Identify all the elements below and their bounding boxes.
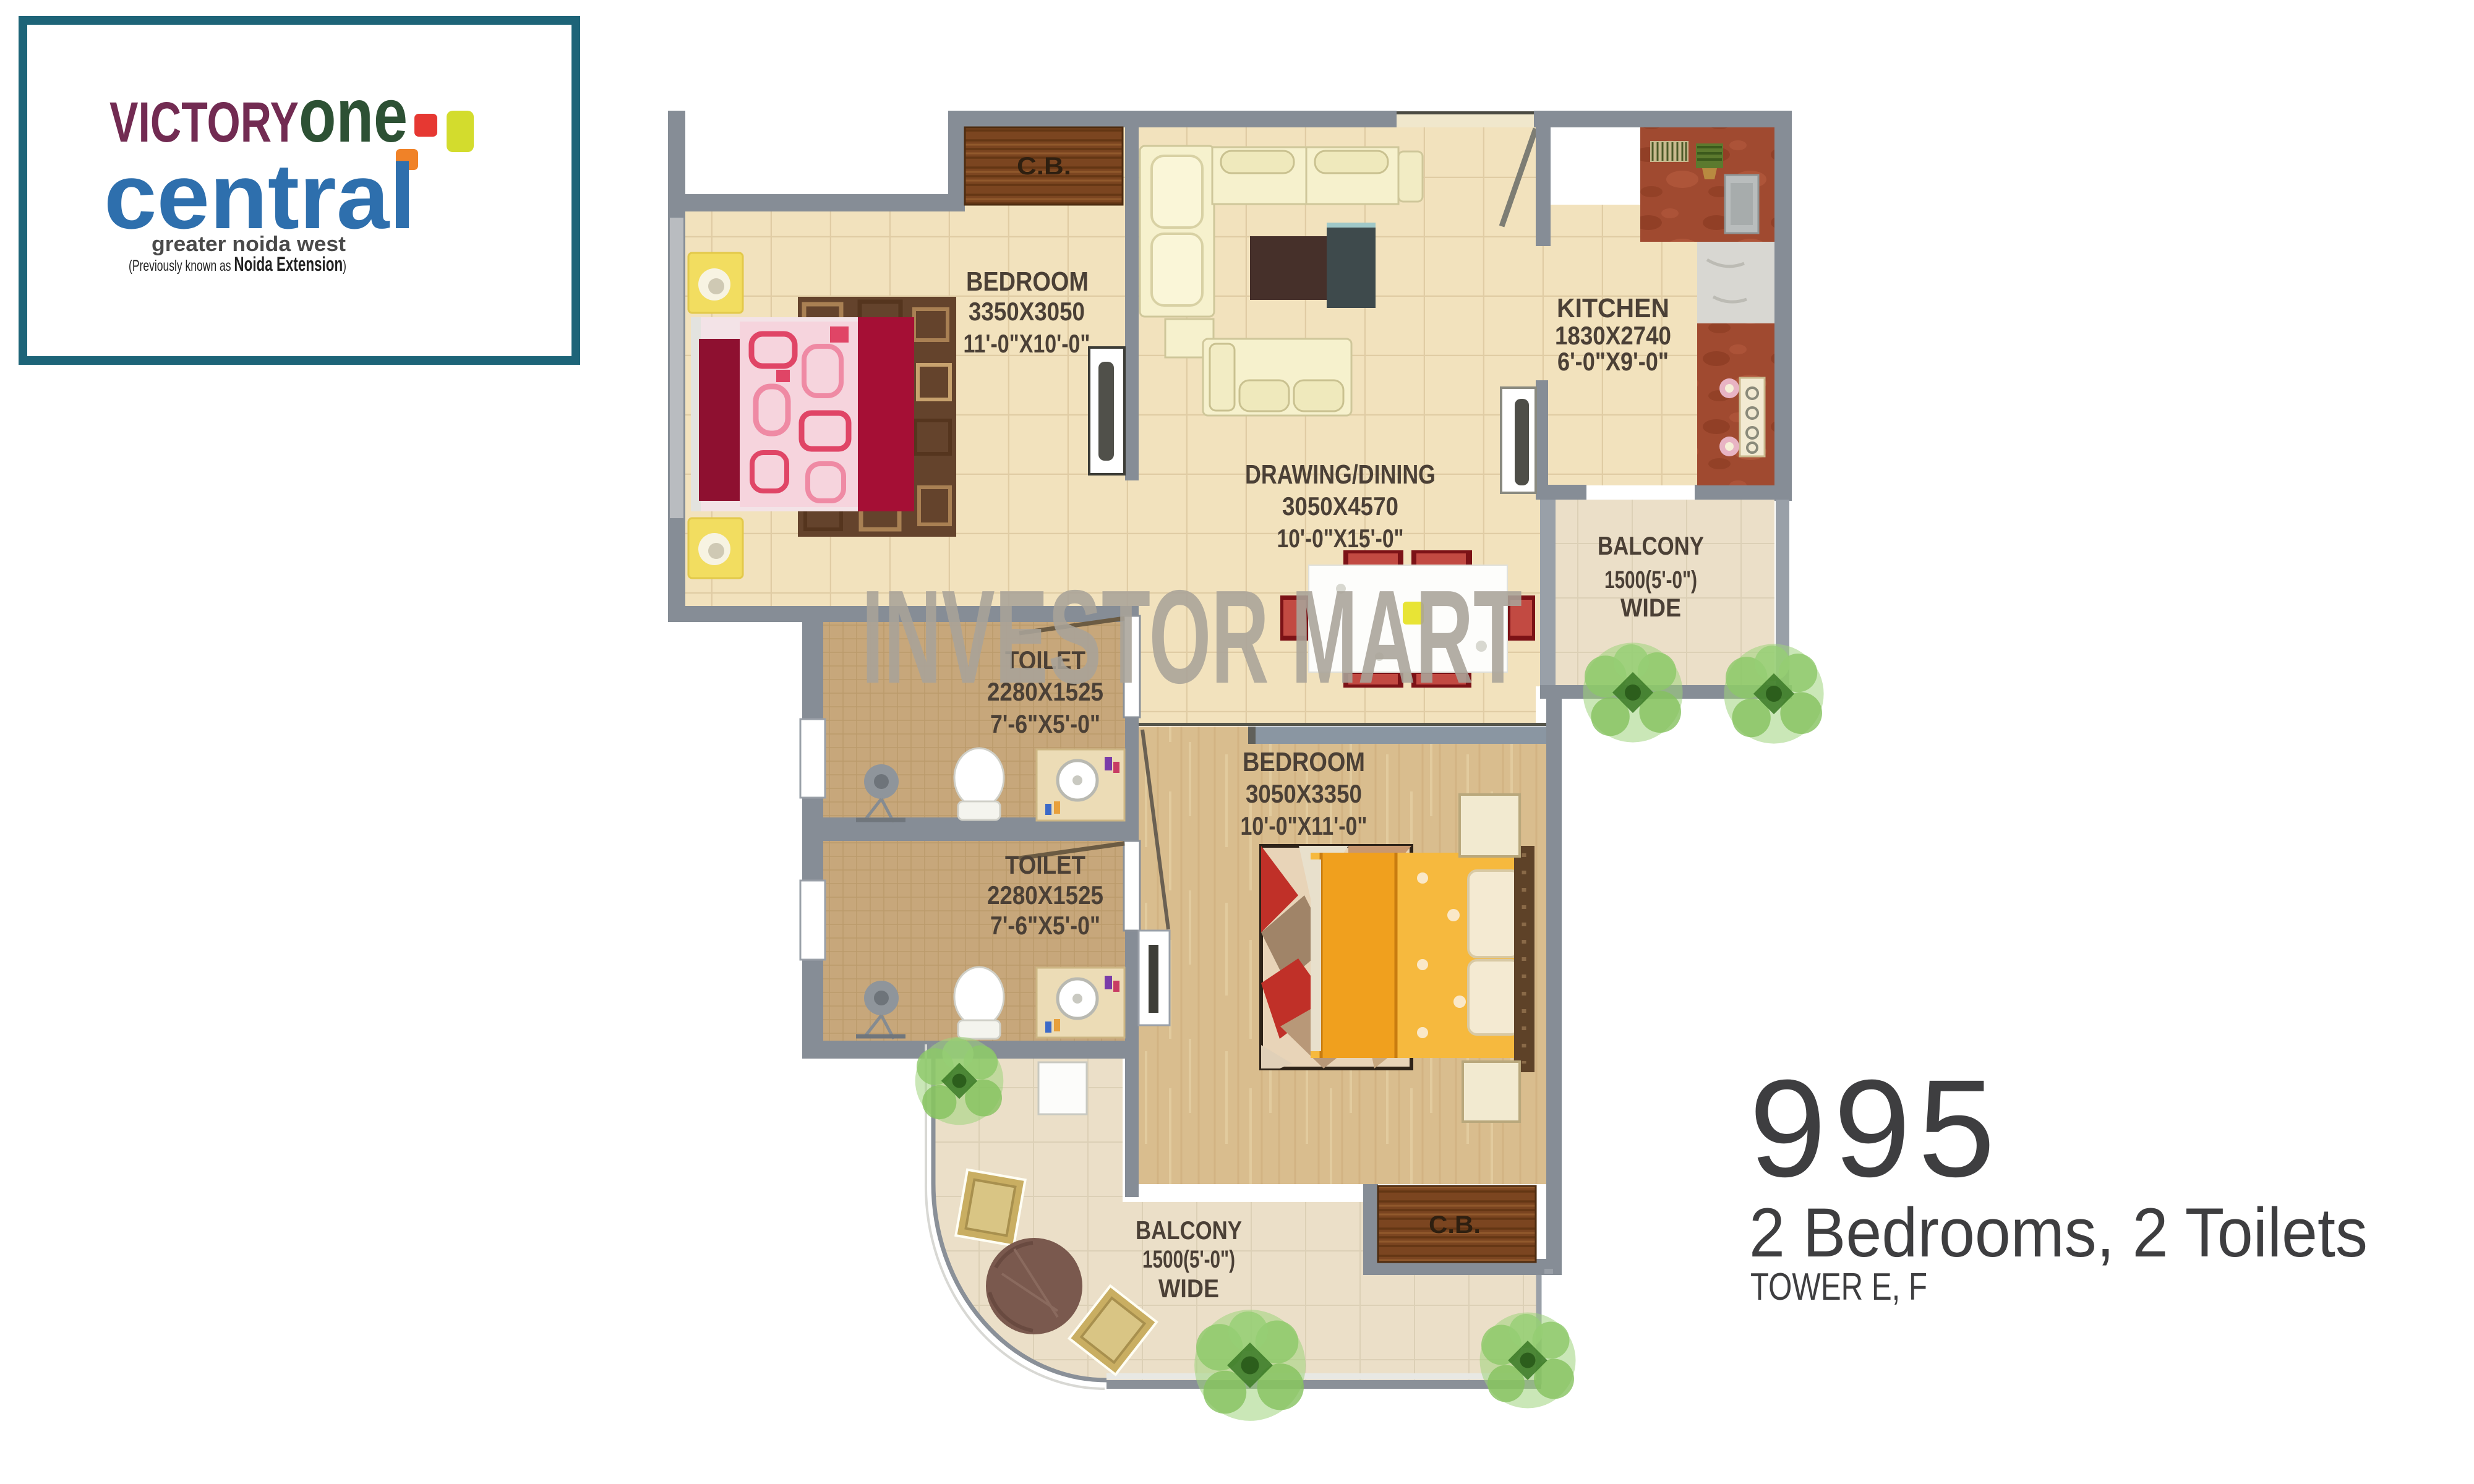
svg-text:BEDROOM: BEDROOM	[1243, 747, 1365, 777]
svg-text:995: 995	[1749, 1051, 2003, 1206]
svg-text:BEDROOM: BEDROOM	[966, 267, 1089, 297]
svg-text:TOILET: TOILET	[1005, 850, 1085, 879]
svg-text:BALCONY: BALCONY	[1136, 1216, 1242, 1245]
svg-text:3050X3350: 3050X3350	[1246, 779, 1362, 808]
svg-text:WIDE: WIDE	[1158, 1274, 1219, 1303]
svg-text:TOWER E, F: TOWER E, F	[1750, 1266, 1927, 1308]
svg-text:1830X2740: 1830X2740	[1555, 321, 1671, 350]
svg-text:6'-0"X9'-0": 6'-0"X9'-0"	[1557, 347, 1669, 376]
svg-text:2280X1525: 2280X1525	[987, 881, 1103, 910]
svg-text:DRAWING/DINING: DRAWING/DINING	[1245, 459, 1436, 490]
svg-text:10'-0"X15'-0": 10'-0"X15'-0"	[1277, 524, 1404, 553]
svg-text:WIDE: WIDE	[1620, 593, 1681, 622]
svg-text:10'-0"X11'-0": 10'-0"X11'-0"	[1241, 811, 1368, 840]
svg-text:3350X3050: 3350X3050	[969, 297, 1085, 326]
svg-text:BALCONY: BALCONY	[1598, 531, 1704, 560]
svg-text:KITCHEN: KITCHEN	[1557, 293, 1669, 323]
svg-text:7'-6"X5'-0": 7'-6"X5'-0"	[990, 709, 1100, 738]
svg-text:C.B.: C.B.	[1429, 1211, 1481, 1239]
svg-text:1500(5'-0"): 1500(5'-0")	[1604, 566, 1697, 594]
svg-text:1500(5'-0"): 1500(5'-0")	[1142, 1246, 1235, 1273]
svg-text:3050X4570: 3050X4570	[1282, 492, 1398, 521]
svg-text:11'-0"X10'-0": 11'-0"X10'-0"	[964, 329, 1090, 358]
svg-text:INVESTOR MART: INVESTOR MART	[862, 562, 1522, 711]
svg-text:7'-6"X5'-0": 7'-6"X5'-0"	[990, 911, 1100, 940]
svg-text:C.B.: C.B.	[1017, 153, 1071, 180]
svg-text:2 Bedrooms, 2 Toilets: 2 Bedrooms, 2 Toilets	[1749, 1194, 2368, 1271]
